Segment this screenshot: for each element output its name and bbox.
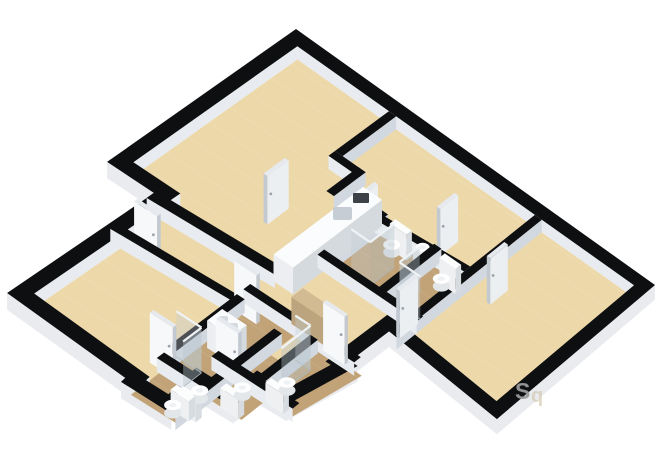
svg-text:q: q xyxy=(531,385,543,407)
svg-text:S: S xyxy=(515,378,530,404)
